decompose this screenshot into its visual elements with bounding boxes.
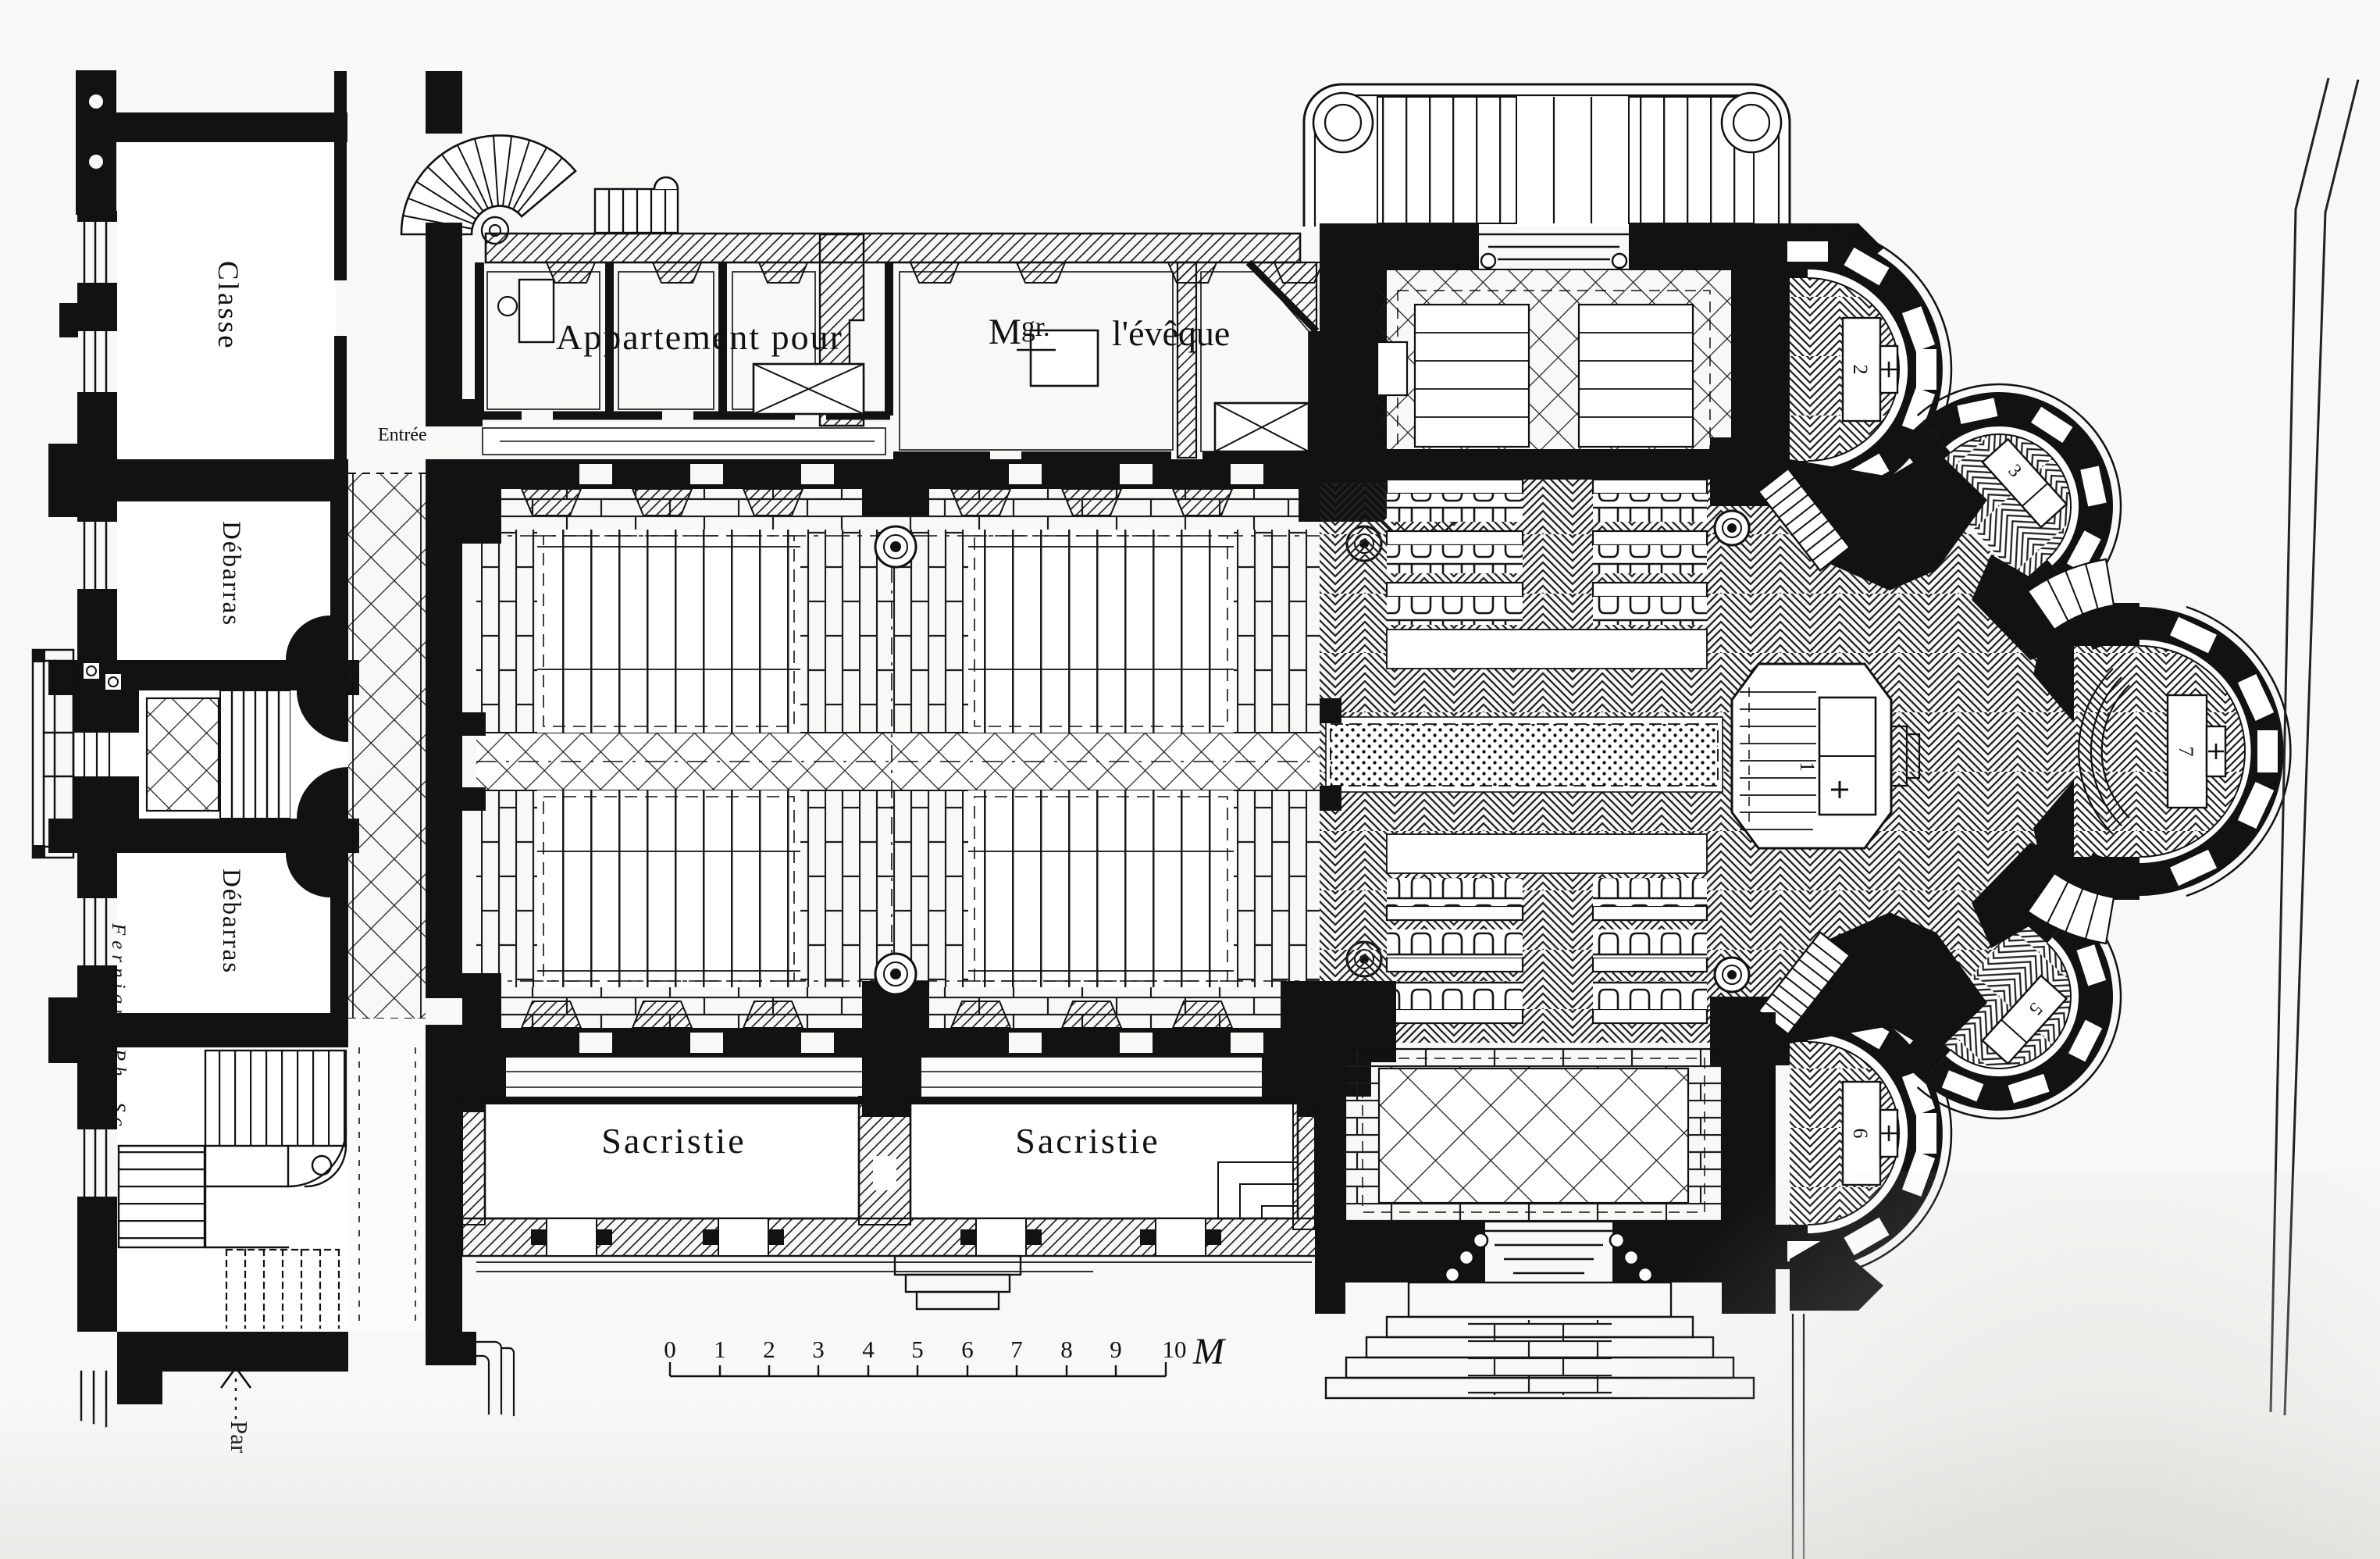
svg-text:4: 4 xyxy=(862,1336,875,1363)
svg-text:10: 10 xyxy=(1163,1336,1187,1363)
svg-text:7: 7 xyxy=(1010,1336,1023,1363)
svg-text:Sacristie: Sacristie xyxy=(601,1121,746,1161)
svg-text:Débarras: Débarras xyxy=(217,869,245,974)
svg-text:8: 8 xyxy=(1060,1336,1073,1363)
svg-text:1: 1 xyxy=(714,1336,726,1363)
svg-text:7: 7 xyxy=(2175,747,2197,757)
svg-text:2: 2 xyxy=(763,1336,775,1363)
svg-text:Débarras: Débarras xyxy=(217,521,245,626)
svg-text:6: 6 xyxy=(1849,1129,1872,1139)
svg-text:M: M xyxy=(1192,1331,1227,1372)
svg-text:Entrée: Entrée xyxy=(378,425,427,445)
svg-text:6: 6 xyxy=(961,1336,974,1363)
svg-text:Appartement pour: Appartement pour xyxy=(556,317,843,357)
svg-text:1: 1 xyxy=(1796,762,1819,772)
svg-text:3: 3 xyxy=(812,1336,825,1363)
svg-text:9: 9 xyxy=(1110,1336,1122,1363)
svg-text:5: 5 xyxy=(911,1336,924,1363)
svg-text:Classe: Classe xyxy=(212,261,244,351)
svg-text:0: 0 xyxy=(664,1336,676,1363)
svg-text:Sacristie: Sacristie xyxy=(1015,1121,1160,1161)
svg-text:Fernique Ph. Sc: Fernique Ph. Sc xyxy=(108,922,129,1132)
svg-text:2: 2 xyxy=(1849,365,1872,375)
svg-text:l'évêque: l'évêque xyxy=(1112,313,1230,353)
